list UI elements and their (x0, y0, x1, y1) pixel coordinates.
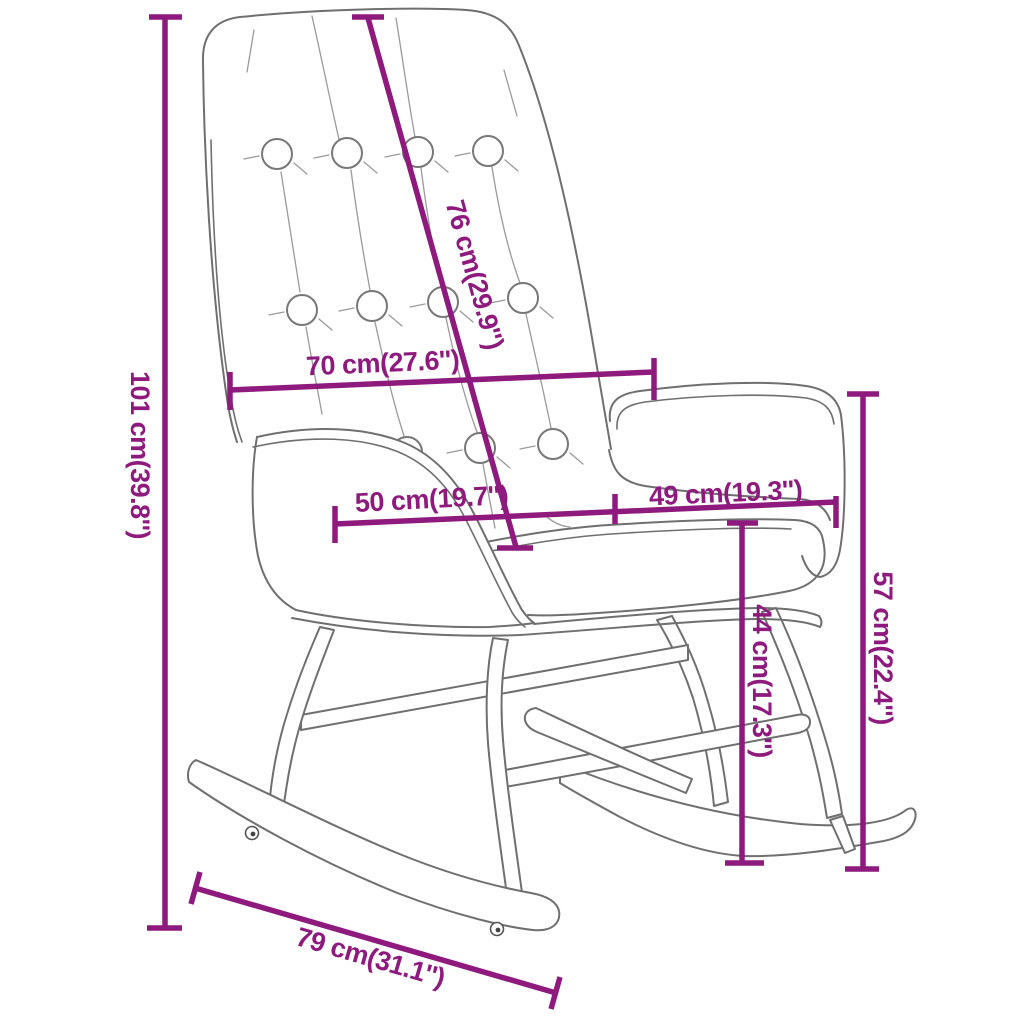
overall-height-label: 101 cm(39.8'') (125, 371, 155, 539)
product-dimension-diagram: 101 cm(39.8'') 76 cm(29.9'') 70 cm(27.6'… (0, 0, 1024, 1024)
seat-height-label: 44 cm(17.3'') (747, 604, 777, 757)
chair-line-art (188, 9, 916, 936)
stretcher-bars (301, 645, 810, 793)
armrest-height-label: 57 cm(22.4'') (868, 571, 898, 724)
rocker-length-label: 79 cm(31.1'') (293, 922, 449, 994)
dimension-seat-height: 44 cm(17.3'') (725, 523, 777, 863)
dimension-armrest-height: 57 cm(22.4'') (845, 394, 898, 869)
rocking-chair-diagram-svg: 101 cm(39.8'') 76 cm(29.9'') 70 cm(27.6'… (0, 0, 1024, 1024)
dimension-overall-height: 101 cm(39.8'') (125, 17, 182, 928)
